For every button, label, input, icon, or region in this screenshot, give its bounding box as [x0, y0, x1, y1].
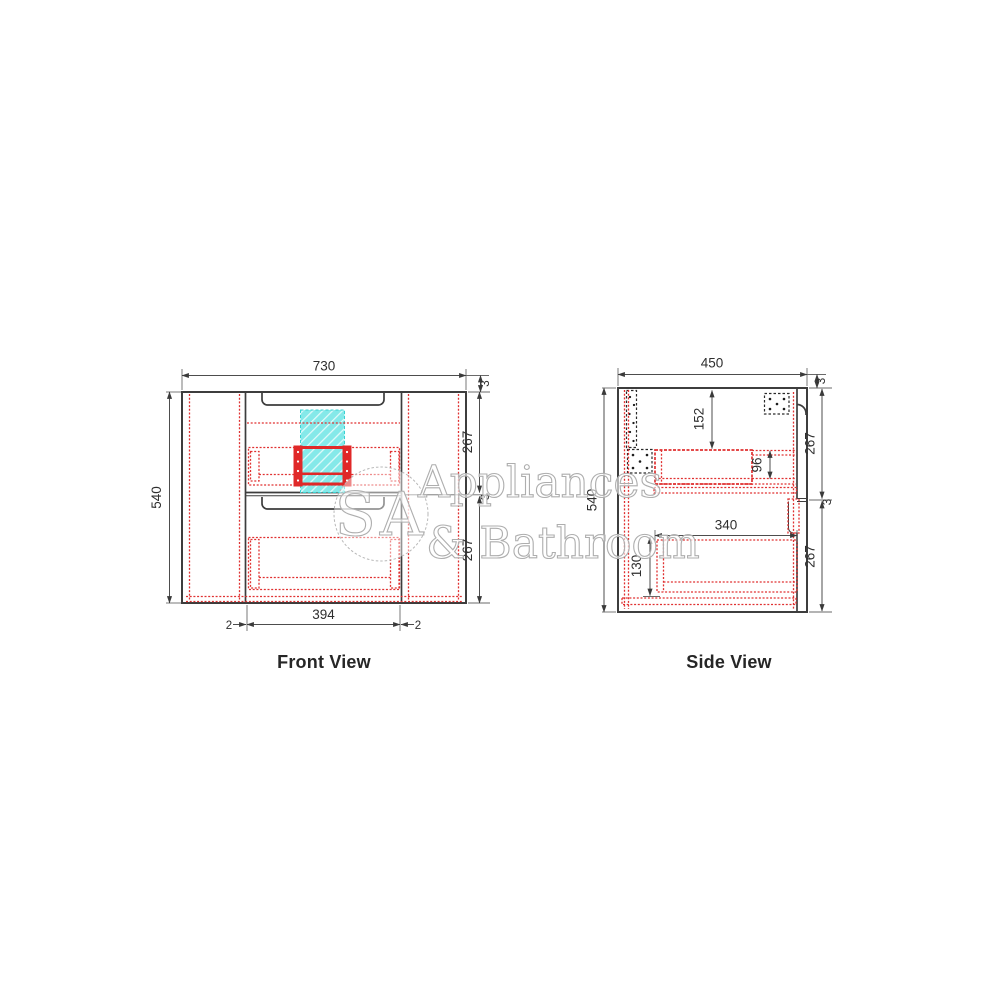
dim-side-lower-front: 267	[803, 545, 818, 568]
dim-front-gap-right: 2	[415, 620, 421, 632]
watermark: SA Appliances & Bathroom	[334, 457, 700, 569]
dim-side-upper-front: 267	[803, 432, 818, 455]
dim-front-top-thickness: 3	[480, 380, 492, 386]
dim-side-gap: 3	[822, 499, 834, 505]
dim-side-depth: 450	[701, 356, 724, 371]
front-view: 730 540 3 267 3 267 394 2 2 Front View	[149, 359, 492, 673]
front-top-handle-notch	[262, 393, 384, 405]
dim-front-upper-front: 267	[460, 431, 475, 454]
dim-side-top-thickness: 3	[816, 378, 828, 384]
side-view: 450 540 3 267 3 267 152 96 340 130 Side …	[585, 356, 835, 673]
dim-front-gap-left: 2	[226, 620, 232, 632]
dim-side-top-clearance: 152	[692, 408, 707, 431]
side-bottom-handle-notch	[789, 502, 798, 534]
watermark-monogram: SA	[335, 480, 427, 550]
dim-front-drawer-width: 394	[312, 607, 335, 622]
side-view-label: Side View	[686, 652, 772, 672]
dim-side-drawer-depth: 340	[715, 518, 738, 533]
vanity-dimension-drawing: 730 540 3 267 3 267 394 2 2 Front View	[0, 0, 1000, 1000]
dim-front-height: 540	[149, 486, 164, 509]
watermark-line2: & Bathroom	[426, 518, 699, 569]
watermark-line1: Appliances	[417, 457, 662, 508]
technical-drawing-page: 730 540 3 267 3 267 394 2 2 Front View	[0, 0, 1000, 1000]
dim-side-drawer-side-height: 96	[750, 457, 765, 472]
dim-front-width: 730	[313, 359, 336, 374]
front-view-label: Front View	[277, 652, 371, 672]
side-top-handle-notch	[797, 405, 806, 416]
